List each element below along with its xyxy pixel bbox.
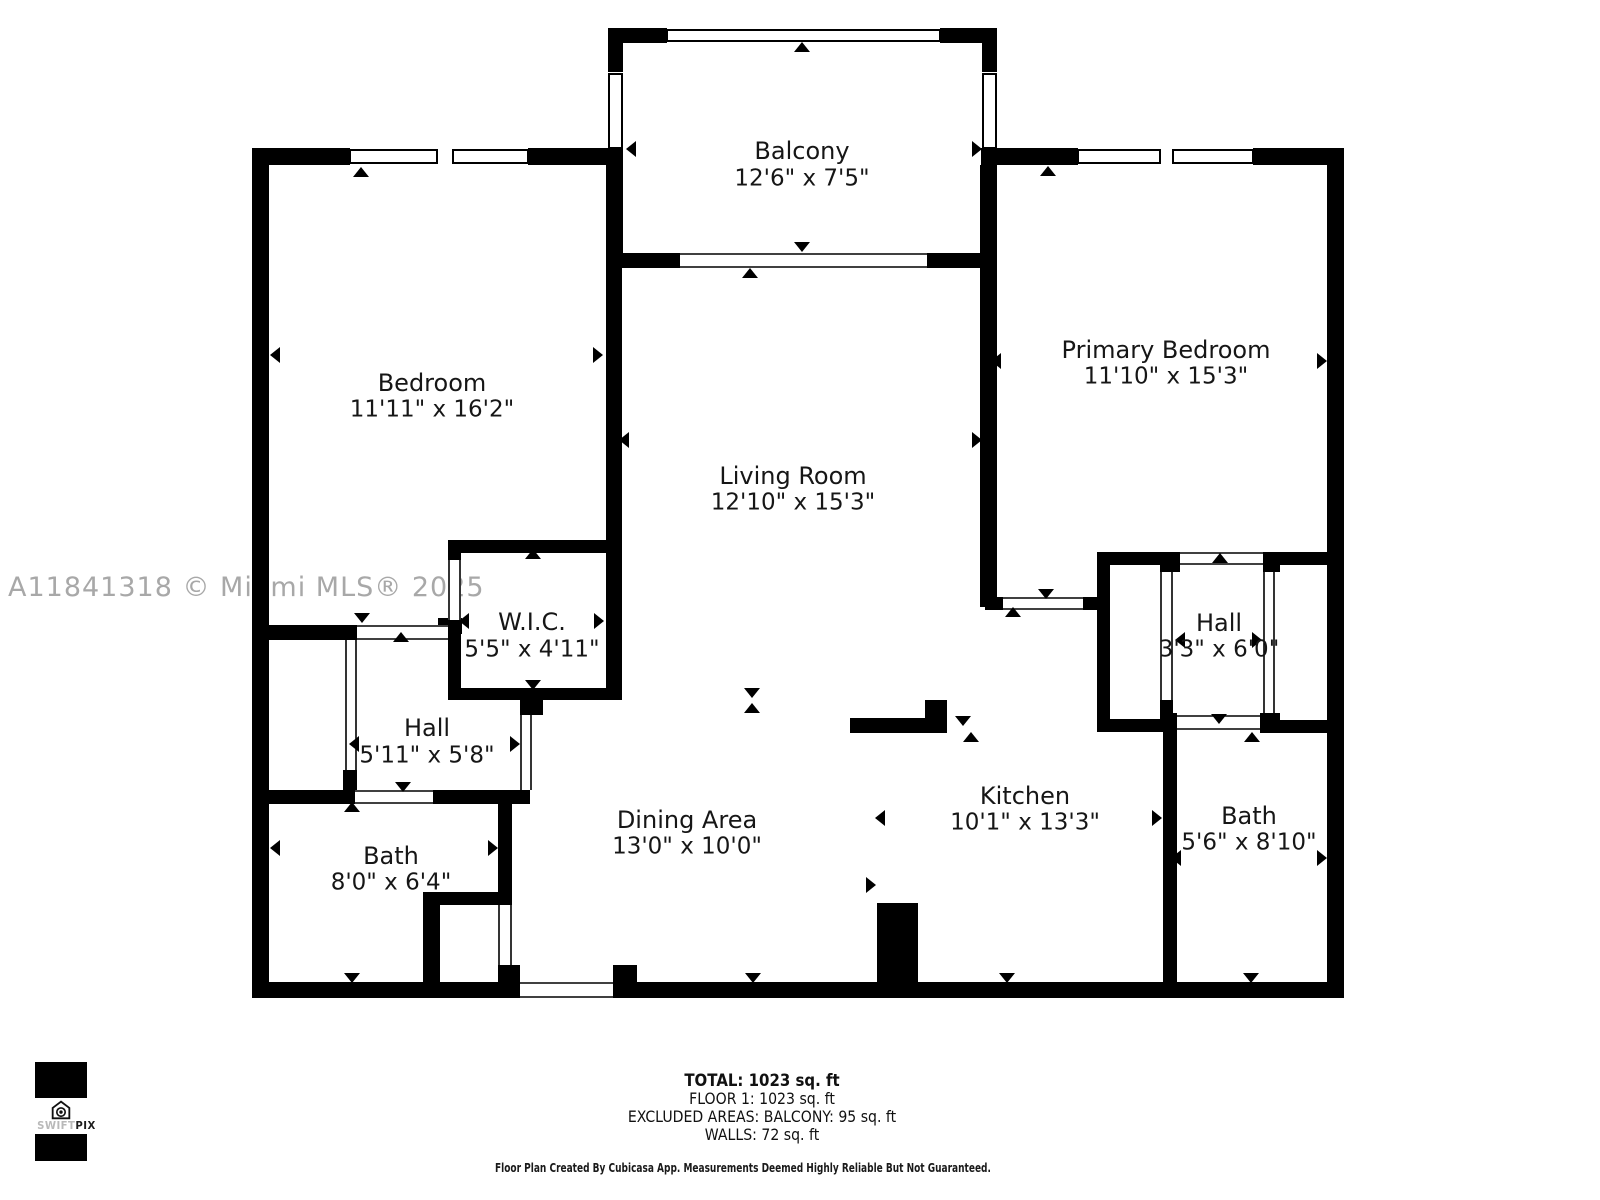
- room-label: Living Room: [719, 462, 866, 490]
- room-dims: 5'6" x 8'10": [1181, 830, 1316, 856]
- direction-marker: [794, 242, 810, 252]
- room-label: Bedroom: [378, 369, 487, 397]
- window: [609, 74, 622, 148]
- wall: [1263, 552, 1327, 565]
- wall: [252, 148, 350, 165]
- house-camera-icon: [51, 1100, 71, 1120]
- floor-plan-page: A11841318 © Miami MLS® 2025 Balcony12'6"…: [0, 0, 1600, 1200]
- wall: [877, 903, 918, 998]
- door-opening: [1003, 597, 1083, 610]
- wall: [980, 165, 997, 607]
- direction-marker: [794, 42, 810, 52]
- room-label: Kitchen: [980, 782, 1070, 810]
- wall: [613, 965, 637, 998]
- wall: [925, 700, 947, 733]
- wall: [850, 718, 927, 733]
- wall: [1083, 597, 1097, 610]
- direction-marker: [510, 736, 520, 752]
- window: [667, 30, 940, 41]
- direction-marker: [353, 167, 369, 177]
- room-dims: 12'6" x 7'5": [734, 166, 869, 192]
- wall: [608, 28, 623, 72]
- direction-marker: [1040, 166, 1056, 176]
- wall: [343, 770, 357, 792]
- direction-marker: [999, 973, 1015, 983]
- wall: [1253, 148, 1344, 165]
- direction-marker: [744, 688, 760, 698]
- wall: [423, 892, 440, 998]
- wall: [498, 965, 520, 998]
- excluded-area-line: EXCLUDED AREAS: BALCONY: 95 sq. ft: [498, 1108, 1026, 1126]
- room-dims: 3'3" x 6'0": [1159, 637, 1280, 663]
- direction-marker: [270, 840, 280, 856]
- room-dims: 12'10" x 15'3": [711, 490, 875, 516]
- direction-marker: [875, 810, 885, 826]
- wall: [269, 790, 355, 804]
- logo-wordmark-bold: PIX: [75, 1119, 95, 1132]
- direction-marker: [488, 840, 498, 856]
- direction-marker: [344, 973, 360, 983]
- window: [350, 150, 437, 163]
- room-dims: 5'11" x 5'8": [359, 743, 494, 769]
- direction-marker: [955, 716, 971, 726]
- room-label: W.I.C.: [498, 608, 566, 636]
- room-label: Primary Bedroom: [1062, 336, 1271, 364]
- window: [1173, 150, 1253, 163]
- area-summary: TOTAL: 1023 sq. ft FLOOR 1: 1023 sq. ft …: [498, 1072, 1026, 1144]
- wall: [1097, 552, 1110, 732]
- logo-photo-block-bottom: [35, 1134, 87, 1161]
- door-opening: [680, 253, 927, 268]
- walls-area-line: WALLS: 72 sq. ft: [498, 1126, 1026, 1144]
- wall: [448, 540, 461, 562]
- direction-marker: [866, 877, 876, 893]
- direction-marker: [593, 347, 603, 363]
- room-label: Dining Area: [617, 806, 757, 834]
- room-label: Bath: [1221, 802, 1277, 830]
- wall: [269, 625, 357, 640]
- swiftpix-logo: SWIFTPIX: [35, 1062, 87, 1161]
- direction-marker: [972, 141, 982, 157]
- wall: [448, 688, 617, 700]
- direction-marker: [742, 268, 758, 278]
- room-dims: 13'0" x 10'0": [612, 834, 762, 860]
- room-label: Hall: [404, 714, 450, 742]
- room-dims: 11'10" x 15'3": [1084, 364, 1248, 390]
- direction-marker: [1317, 850, 1327, 866]
- direction-marker: [626, 141, 636, 157]
- room-label: Bath: [363, 842, 419, 870]
- wall: [613, 982, 1344, 998]
- direction-marker: [963, 732, 979, 742]
- disclaimer-text: Floor Plan Created By Cubicasa App. Meas…: [495, 1160, 927, 1175]
- direction-marker: [270, 347, 280, 363]
- door-opening: [498, 905, 512, 965]
- room-dims: 11'11" x 16'2": [350, 397, 514, 423]
- wall: [1260, 720, 1327, 733]
- wall: [1160, 552, 1180, 572]
- logo-wordmark-light: SWIFT: [37, 1119, 75, 1132]
- wall: [252, 148, 269, 998]
- direction-marker: [1244, 732, 1260, 742]
- wall: [252, 982, 520, 998]
- logo-wordmark: SWIFTPIX: [37, 1120, 85, 1132]
- window: [983, 74, 996, 148]
- logo-photo-block-top: [35, 1062, 87, 1098]
- door-opening: [520, 982, 613, 998]
- wall: [520, 700, 543, 715]
- direction-marker: [1317, 353, 1327, 369]
- direction-marker: [745, 973, 761, 983]
- room-label: Hall: [1196, 609, 1242, 637]
- room-dims: 10'1" x 13'3": [950, 810, 1100, 836]
- wall: [498, 790, 512, 907]
- total-area-line: TOTAL: 1023 sq. ft: [498, 1072, 1026, 1090]
- direction-marker: [1152, 810, 1162, 826]
- wall: [985, 597, 1003, 610]
- door-opening: [355, 790, 433, 804]
- floor-area-line: FLOOR 1: 1023 sq. ft: [498, 1090, 1026, 1108]
- direction-marker: [744, 703, 760, 713]
- room-dims: 5'5" x 4'11": [464, 637, 599, 663]
- room-dims: 8'0" x 6'4": [331, 870, 452, 896]
- direction-marker: [1243, 973, 1259, 983]
- wall: [606, 165, 622, 700]
- wall: [1327, 148, 1344, 998]
- wall: [982, 28, 997, 72]
- room-label: Balcony: [754, 137, 849, 165]
- window: [453, 150, 528, 163]
- floor-plan-drawing: Balcony12'6" x 7'5"Bedroom11'11" x 16'2"…: [0, 0, 1600, 1200]
- direction-marker: [594, 613, 604, 629]
- direction-marker: [354, 613, 370, 623]
- door-opening: [448, 560, 461, 620]
- window: [1078, 150, 1160, 163]
- wall: [433, 790, 530, 804]
